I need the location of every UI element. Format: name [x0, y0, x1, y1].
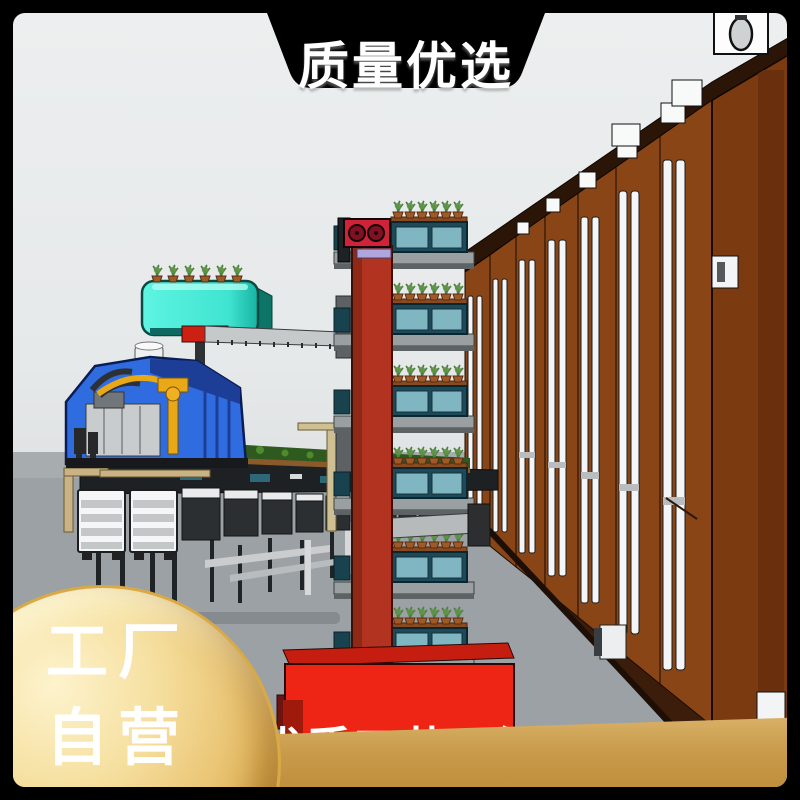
badge-line-2: 自营 — [46, 696, 190, 782]
white-crate — [130, 490, 177, 560]
blue-machine — [66, 342, 248, 477]
badge-line-1: 工厂 — [46, 610, 190, 696]
factory-badge-text: 工厂 自营 — [46, 610, 190, 782]
top-banner-label: 质量优选 — [19, 25, 787, 99]
product-image-frame: 优质工艺 经久耐用 工厂 自营 质量优选 — [0, 0, 800, 800]
image-content-area: 优质工艺 经久耐用 工厂 自营 质量优选 — [13, 13, 787, 787]
fan-unit — [344, 219, 390, 247]
white-crate — [78, 490, 125, 560]
